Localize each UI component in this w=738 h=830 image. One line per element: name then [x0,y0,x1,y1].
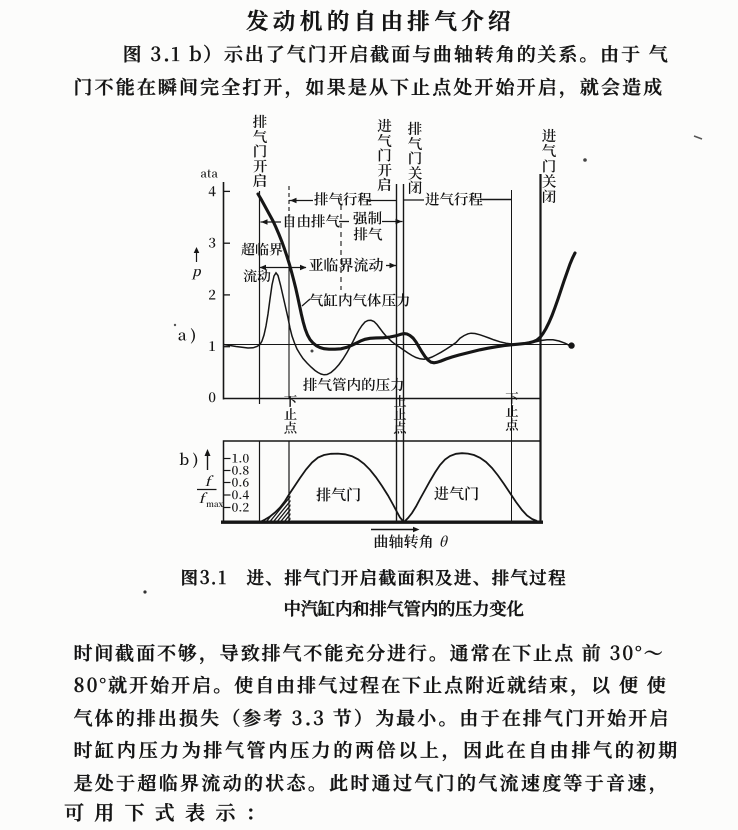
svg-text:亚临界流动: 亚临界流动 [309,254,384,275]
svg-text:曲轴转角: 曲轴转角 [374,531,434,552]
svg-text:点: 点 [505,414,518,433]
svg-text:4: 4 [208,180,216,200]
svg-text:启: 启 [377,174,392,195]
svg-text:闭: 闭 [408,177,423,198]
svg-text:a ): a ) [178,324,196,345]
svg-text:进气门: 进气门 [434,483,479,504]
svg-text:f: f [205,471,214,490]
svg-text:排气: 排气 [354,224,383,245]
svg-text:b ): b ) [179,449,198,470]
svg-text:自由排气: 自由排气 [282,211,340,232]
svg-text:点: 点 [393,417,406,436]
svg-text:流动: 流动 [243,266,271,286]
svg-text:气缸内气体压力: 气缸内气体压力 [309,290,411,311]
svg-text:1: 1 [208,335,216,355]
svg-text:p: p [191,261,202,280]
svg-text:2: 2 [208,283,216,303]
svg-text:排气管内的压力: 排气管内的压力 [303,374,405,395]
svg-text:max: max [206,499,224,510]
svg-text:排气行程: 排气行程 [314,189,372,210]
svg-text:3: 3 [208,232,216,252]
svg-text:排气门: 排气门 [316,484,361,505]
svg-text:超临界: 超临界 [241,240,283,260]
svg-text:启: 启 [253,170,268,191]
svg-text:点: 点 [284,417,297,436]
svg-text:进气行程: 进气行程 [425,189,483,210]
svg-text:0: 0 [208,386,216,406]
svg-text:θ: θ [439,531,448,551]
svg-text:0.2: 0.2 [232,499,250,516]
svg-text:闭: 闭 [542,186,557,207]
svg-text:ata: ata [201,166,220,182]
